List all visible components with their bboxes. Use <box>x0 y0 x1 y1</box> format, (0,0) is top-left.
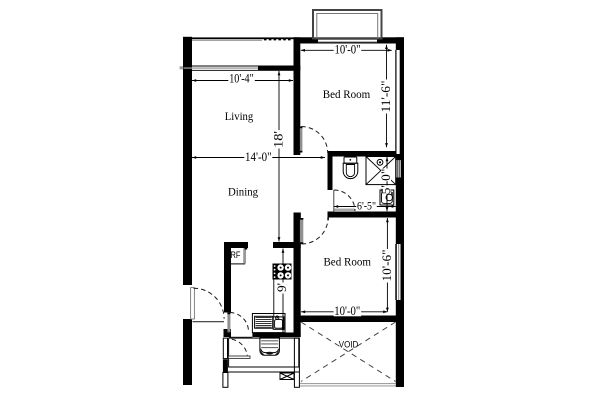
svg-text:9': 9' <box>274 283 289 292</box>
svg-text:10'-6": 10'-6" <box>379 250 394 282</box>
svg-text:6'-5": 6'-5" <box>357 200 376 212</box>
svg-text:Bed Room: Bed Room <box>323 87 371 101</box>
svg-text:VOID: VOID <box>339 340 359 350</box>
svg-text:Living: Living <box>225 109 254 123</box>
svg-text:10'-4": 10'-4" <box>229 70 254 85</box>
svg-text:Dining: Dining <box>228 185 258 199</box>
svg-text:14'-0": 14'-0" <box>245 149 272 164</box>
svg-text:Bed Room: Bed Room <box>323 255 371 269</box>
svg-text:11'-6": 11'-6" <box>378 81 393 113</box>
svg-text:18': 18' <box>270 131 285 148</box>
svg-text:RF: RF <box>231 250 241 260</box>
svg-text:5'-0": 5'-0" <box>378 169 393 195</box>
svg-text:10'-0": 10'-0" <box>334 303 360 318</box>
svg-text:10'-0": 10'-0" <box>335 41 361 56</box>
